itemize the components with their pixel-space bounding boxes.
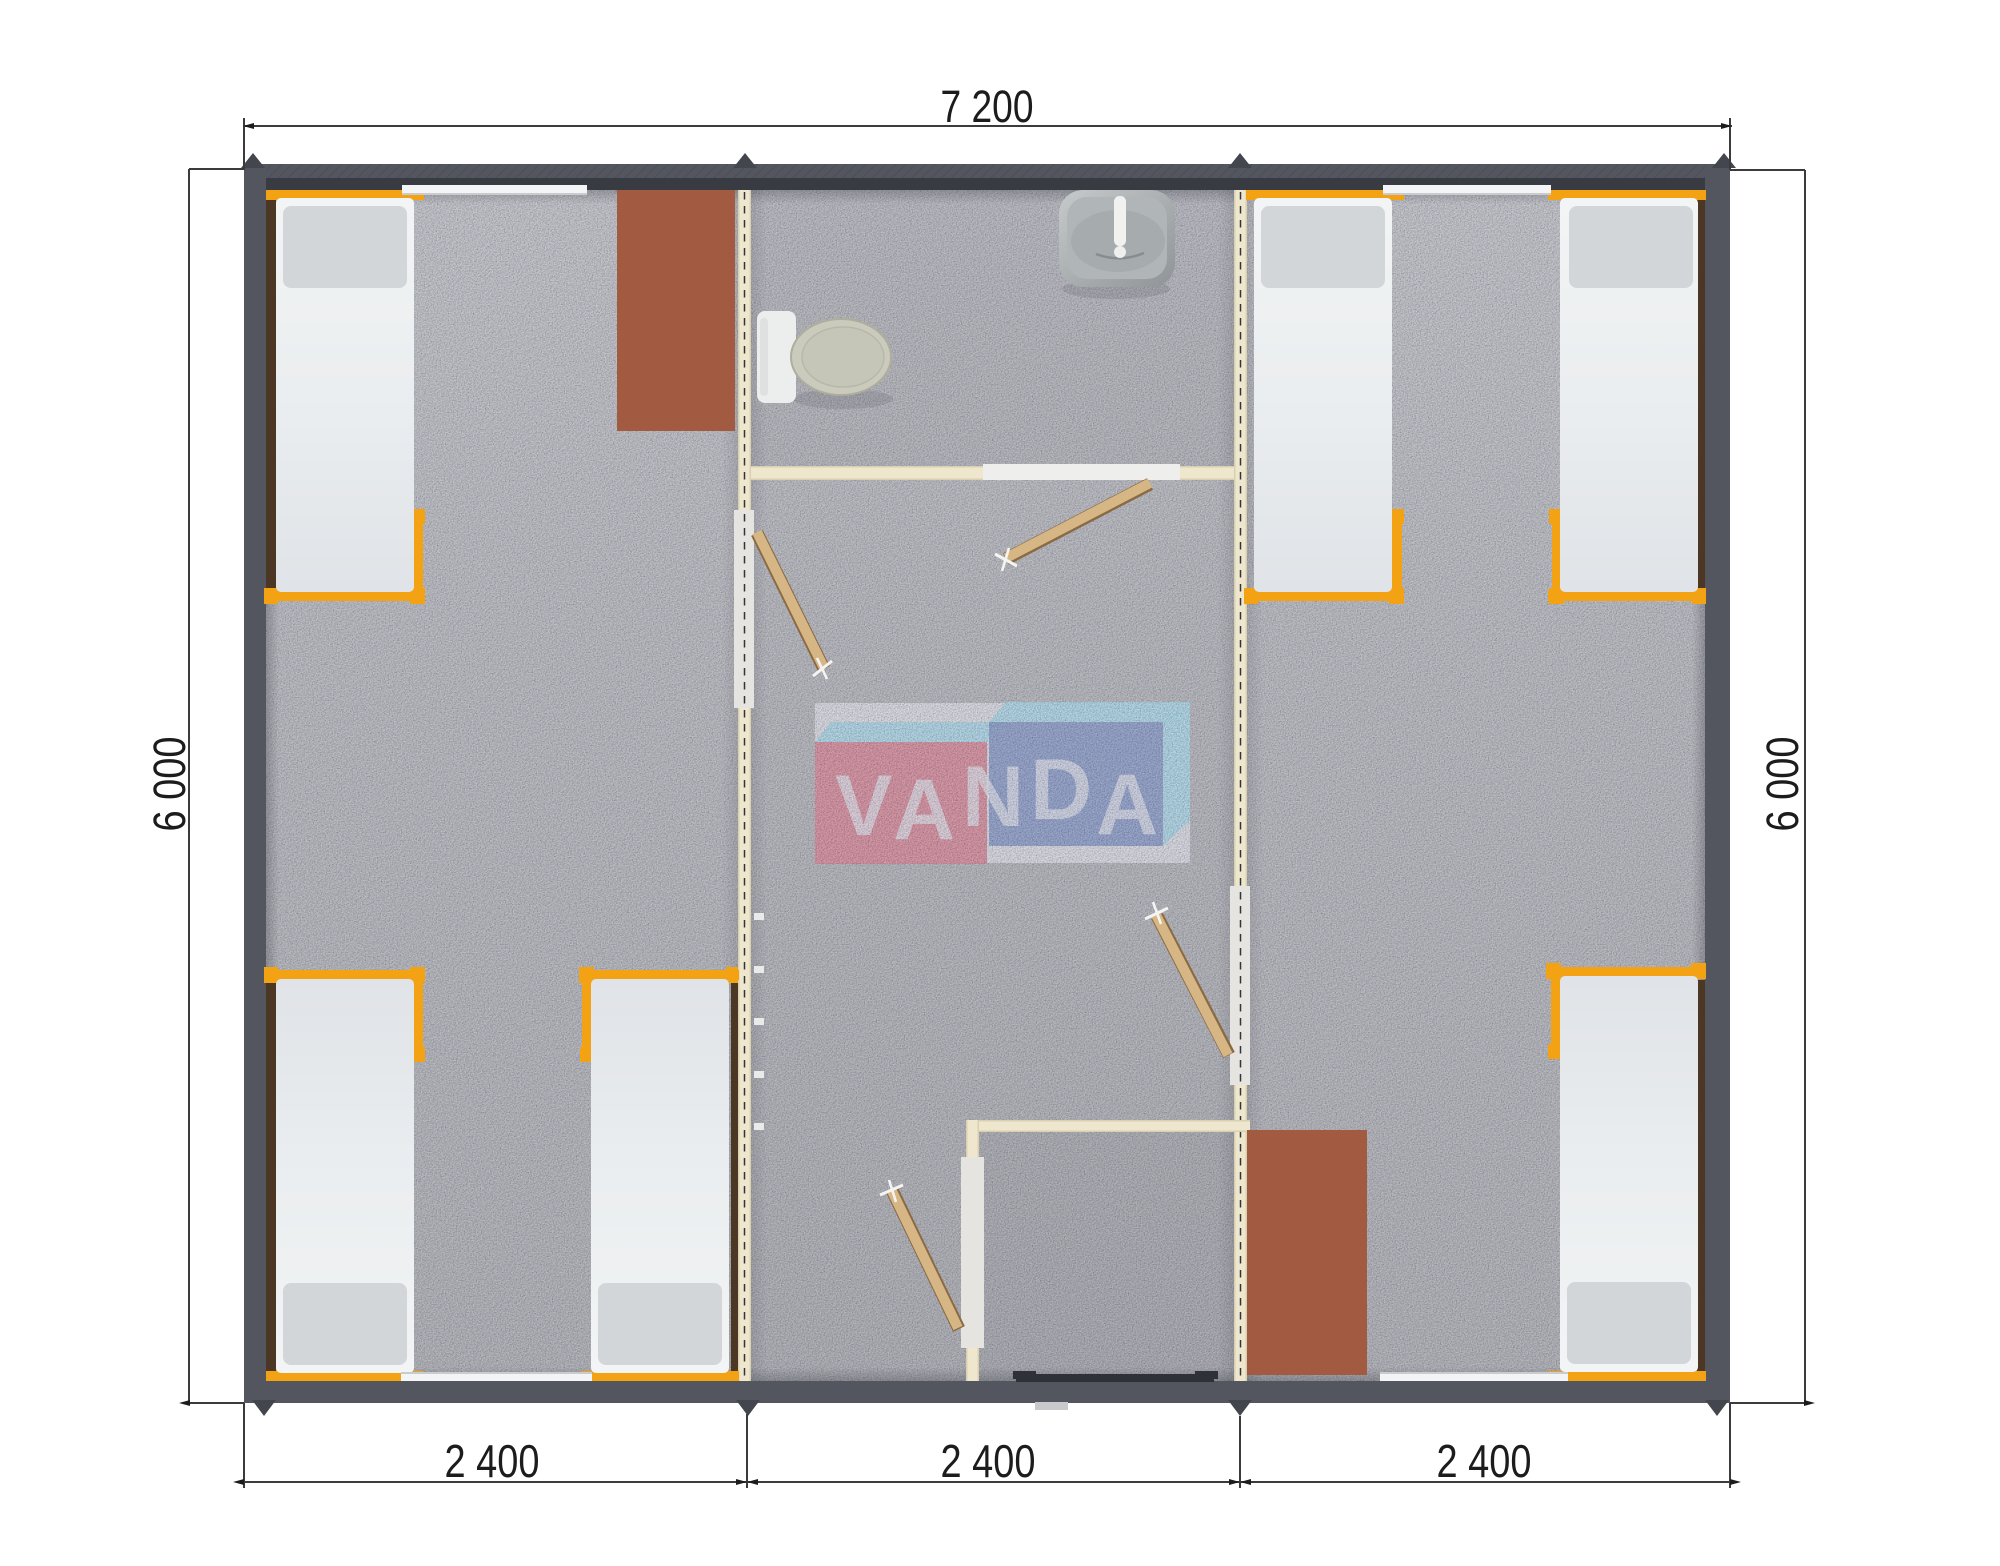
- svg-text:6 000: 6 000: [144, 737, 195, 832]
- svg-text:6 000: 6 000: [1757, 737, 1808, 832]
- svg-text:2 400: 2 400: [941, 1435, 1036, 1487]
- svg-text:2 400: 2 400: [445, 1435, 540, 1487]
- svg-text:2 400: 2 400: [1437, 1435, 1532, 1487]
- svg-text:7 200: 7 200: [941, 81, 1034, 132]
